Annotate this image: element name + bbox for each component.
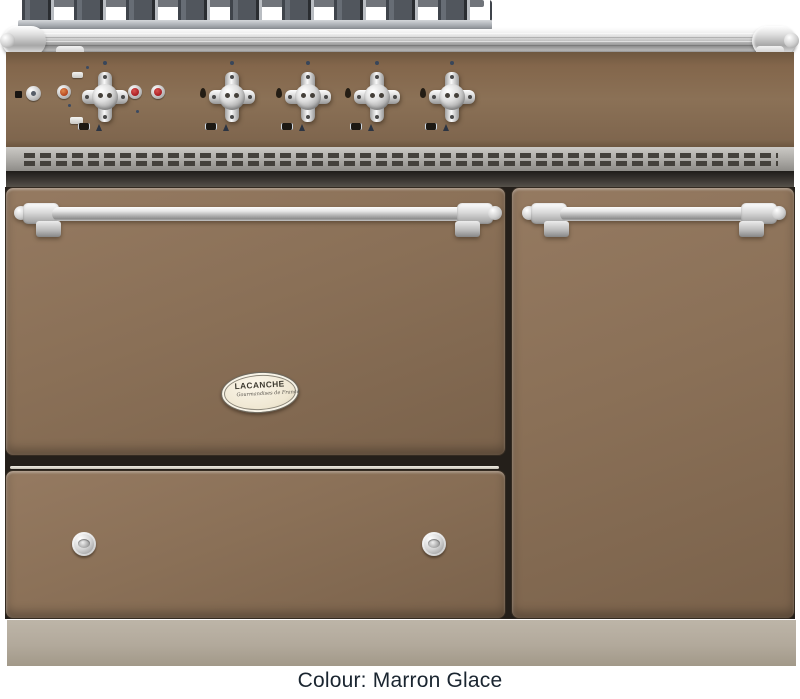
burner-knob-group [190,53,274,141]
plinth [7,620,796,666]
knob-center-boss [295,84,321,110]
burner-knob [354,72,400,122]
knob-arm-dot [212,95,216,99]
grate-fingers [18,0,492,22]
knob-arm-dot [450,75,454,79]
knob-arm-dot [393,95,397,99]
knob-arm-dot [375,75,379,79]
knob-arm-dot [306,75,310,79]
vent-slots-row [24,153,778,158]
oven-thermostat-knob [82,72,128,122]
pointer-icon [96,124,102,131]
lacanche-badge: LACANCHE Gourmandises de France [220,370,300,415]
pointer-icon [368,124,374,131]
handle-finial [488,206,502,220]
vent-grille [6,147,794,171]
flame-icon [200,88,206,98]
oven-body: LACANCHE Gourmandises de France [5,187,795,619]
pointer-icon [223,124,229,131]
vent-slots-row [24,161,778,166]
knob-arm-dot [248,95,252,99]
setting-dot [306,61,310,65]
drawer-seam-highlight [10,466,499,469]
flame-icon [345,88,351,98]
burner-knob [285,72,331,122]
knob-arm-dot [357,95,361,99]
knob-arm-dot [85,95,89,99]
ignition-button [26,86,41,101]
cooktop-grates [18,0,492,30]
towel-rail-grooves [10,33,790,48]
knob-arm-dot [230,115,234,119]
knob-center-boss [92,84,118,110]
burner-knob [209,72,255,122]
setting-dot [103,61,107,65]
burner-knob-group [335,53,419,141]
knob-arm-dot [450,115,454,119]
indicator-light-red [151,85,165,99]
handle-foot [36,221,61,237]
handle-foot [739,221,764,237]
burner-knob-group [410,53,494,141]
handle-bar [560,207,748,221]
burner-diagram-icon [425,123,437,130]
knob-arm-dot [306,115,310,119]
knob-arm-dot [468,95,472,99]
body-shadow-band [6,171,794,187]
control-panel [6,52,794,147]
left-oven-door: LACANCHE Gourmandises de France [5,187,506,456]
knob-arm-dot [288,95,292,99]
burner-diagram-icon [205,123,217,130]
knob-arm-dot [230,75,234,79]
knob-arm-dot [121,95,125,99]
right-door-handle [522,196,784,240]
product-photo: LACANCHE Gourmandises de France Colour: … [0,0,800,699]
knob-arm-dot [324,95,328,99]
panel-label-chip [15,91,22,98]
setting-dot [375,61,379,65]
handle-bar [52,207,464,221]
knob-center-boss [364,84,390,110]
knob-arm-dot [432,95,436,99]
colour-caption: Colour: Marron Glace [0,669,800,693]
flame-icon [420,88,426,98]
setting-dot [450,61,454,65]
handle-foot [455,221,480,237]
knob-arm-dot [375,115,379,119]
left-door-handle [14,196,500,240]
drawer-knob-left [72,532,96,556]
setting-dot [230,61,234,65]
burner-diagram-icon [281,123,293,130]
knob-arm-dot [103,75,107,79]
right-oven-door [511,187,795,619]
handle-finial [772,206,786,220]
handle-foot [544,221,569,237]
burner-diagram-icon [350,123,362,130]
badge-tagline-text: Gourmandises de France [236,389,283,397]
knob-arm-dot [103,115,107,119]
oven-knob-group [63,53,147,141]
knob-center-boss [219,84,245,110]
pointer-icon [443,124,449,131]
flame-icon [276,88,282,98]
pointer-icon [299,124,305,131]
burner-diagram-icon [78,123,90,130]
knob-center-boss [439,84,465,110]
storage-drawer [5,470,506,619]
towel-rail-finial-left [0,33,15,48]
drawer-knob-right [422,532,446,556]
burner-knob [429,72,475,122]
